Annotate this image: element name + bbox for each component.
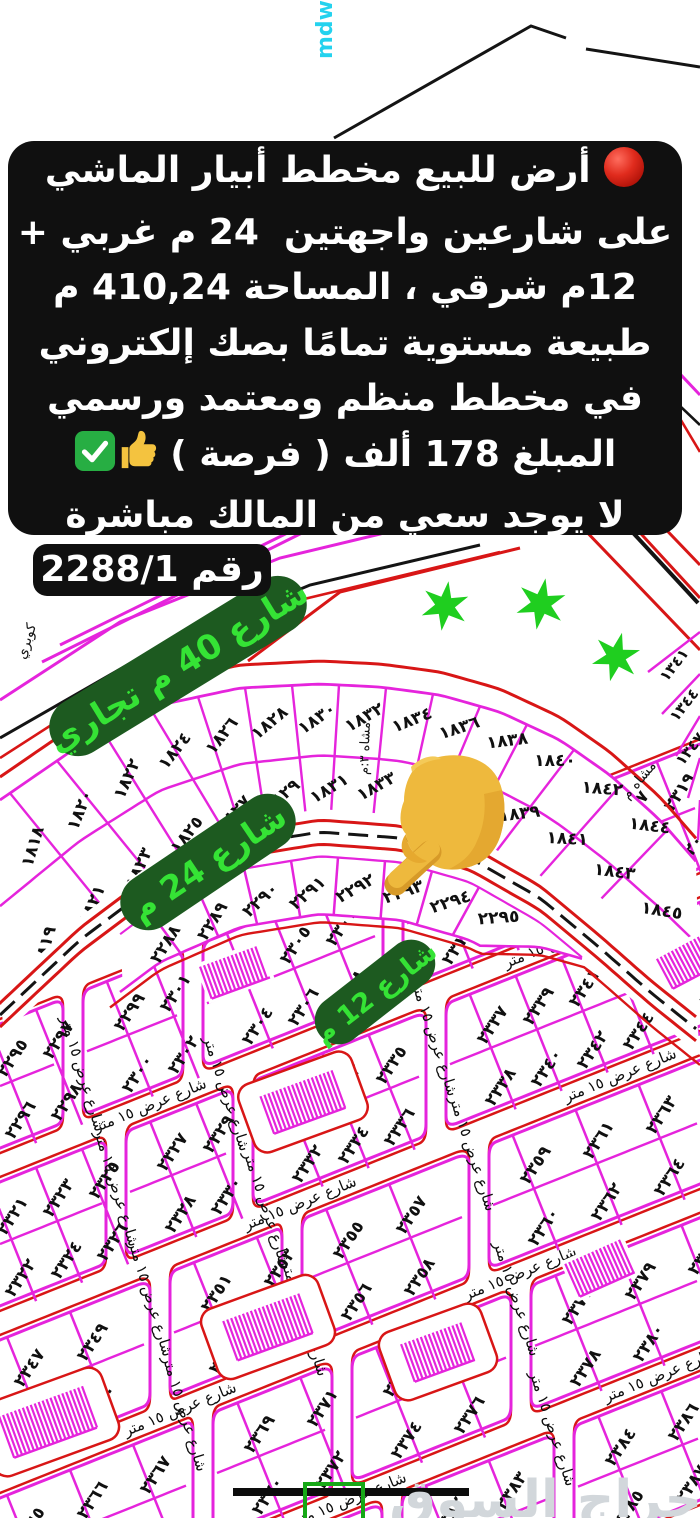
svg-text:١٨٤٢: ١٨٤٢	[581, 778, 624, 801]
svg-text:حراج السوق: حراج السوق	[389, 1470, 700, 1518]
svg-text:١٨٤٠: ١٨٤٠	[534, 751, 576, 771]
svg-text:١٣٤١: ١٣٤١	[656, 645, 693, 685]
svg-text:mdw: mdw	[313, 0, 338, 59]
svg-text:١٨٤١: ١٨٤١	[546, 828, 589, 850]
svg-text:٢٢٩٥: ٢٢٩٥	[477, 907, 520, 930]
svg-text:مشاه ٣:م: مشاه ٣:م	[357, 722, 374, 775]
svg-text:كوبري: كوبري	[14, 621, 41, 661]
